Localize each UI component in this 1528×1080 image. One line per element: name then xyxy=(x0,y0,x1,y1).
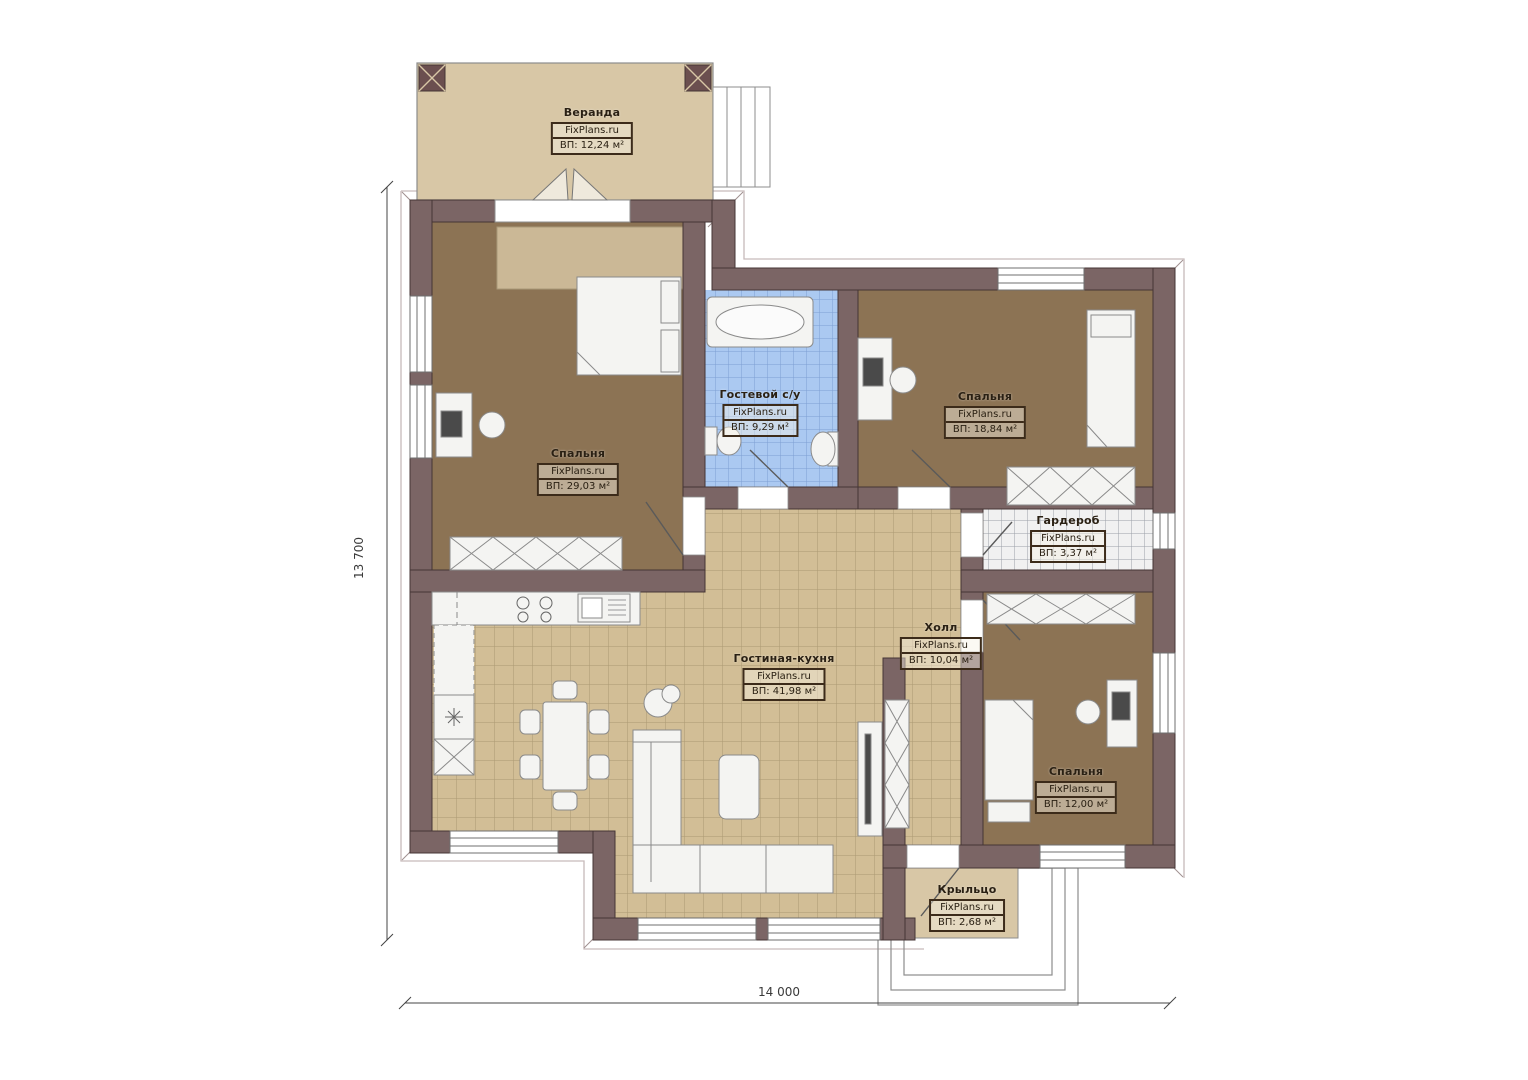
bathtub xyxy=(707,297,813,347)
room-label-living-kitchen: Гостиная-кухня FixPlans.ru ВП: 41,98 м² xyxy=(733,653,834,701)
room-name: Холл xyxy=(900,622,982,635)
washbasin xyxy=(811,432,838,466)
fridge xyxy=(434,695,474,739)
coffee-table xyxy=(719,755,759,819)
room-label-bedroom-left: Спальня FixPlans.ru ВП: 29,03 м² xyxy=(537,448,619,496)
watermark: FixPlans.ru xyxy=(1032,532,1104,548)
room-area: ВП: 18,84 м² xyxy=(946,423,1024,437)
entrance-door-opening xyxy=(907,845,959,868)
bed-single xyxy=(1087,310,1135,447)
chair xyxy=(1076,700,1100,724)
window xyxy=(638,918,756,940)
watermark: FixPlans.ru xyxy=(539,465,617,481)
desk-with-computer xyxy=(436,393,472,457)
closet xyxy=(1007,467,1135,505)
window xyxy=(768,918,880,940)
dimension-height-label: 13 700 xyxy=(352,537,366,579)
chair xyxy=(479,412,505,438)
window xyxy=(1040,845,1125,868)
room-area: ВП: 12,00 м² xyxy=(1037,798,1115,812)
desk-with-computer xyxy=(858,338,892,420)
closet xyxy=(885,700,909,828)
watermark: FixPlans.ru xyxy=(902,639,980,655)
window xyxy=(998,268,1084,290)
watermark: FixPlans.ru xyxy=(745,670,823,686)
watermark: FixPlans.ru xyxy=(1037,783,1115,799)
room-label-bedroom-bottom-right: Спальня FixPlans.ru ВП: 12,00 м² xyxy=(1035,766,1117,814)
room-area: ВП: 29,03 м² xyxy=(539,480,617,494)
room-name: Спальня xyxy=(1035,766,1117,779)
window xyxy=(410,385,432,458)
room-area: ВП: 3,37 м² xyxy=(1032,547,1104,561)
bed-single xyxy=(985,700,1033,822)
window xyxy=(410,296,432,372)
room-label-hall: Холл FixPlans.ru ВП: 10,04 м² xyxy=(900,622,982,670)
cabinet xyxy=(434,739,474,775)
closet xyxy=(450,537,622,570)
dimension-width-label: 14 000 xyxy=(758,985,800,999)
room-name: Крыльцо xyxy=(929,884,1005,897)
room-name: Гардероб xyxy=(1030,515,1106,528)
room-area: ВП: 10,04 м² xyxy=(902,654,980,668)
room-label-bedroom-top-right: Спальня FixPlans.ru ВП: 18,84 м² xyxy=(944,391,1026,439)
watermark: FixPlans.ru xyxy=(946,408,1024,424)
watermark: FixPlans.ru xyxy=(931,901,1003,917)
watermark: FixPlans.ru xyxy=(553,124,631,140)
closet xyxy=(987,594,1135,624)
room-area: ВП: 12,24 м² xyxy=(553,139,631,153)
room-area: ВП: 41,98 м² xyxy=(745,685,823,699)
bed-double xyxy=(577,277,681,375)
window xyxy=(1153,653,1175,733)
veranda-door-opening xyxy=(495,200,630,222)
room-name: Гостиная-кухня xyxy=(733,653,834,666)
tv-stand xyxy=(858,722,882,836)
room-label-veranda: Веранда FixPlans.ru ВП: 12,24 м² xyxy=(551,107,633,155)
kitchen-sink xyxy=(578,594,630,622)
room-label-porch: Крыльцо FixPlans.ru ВП: 2,68 м² xyxy=(929,884,1005,932)
room-area: ВП: 2,68 м² xyxy=(931,916,1003,930)
chair xyxy=(890,367,916,393)
watermark: FixPlans.ru xyxy=(724,406,796,422)
room-name: Спальня xyxy=(537,448,619,461)
window xyxy=(450,831,558,853)
room-name: Гостевой с/у xyxy=(719,389,800,402)
floor-plan-drawing xyxy=(0,0,1528,1080)
room-name: Веранда xyxy=(551,107,633,120)
room-label-guest-bathroom: Гостевой с/у FixPlans.ru ВП: 9,29 м² xyxy=(719,389,800,437)
window xyxy=(1153,513,1175,549)
room-area: ВП: 9,29 м² xyxy=(724,421,796,435)
desk-with-computer xyxy=(1107,680,1137,747)
room-label-wardrobe: Гардероб FixPlans.ru ВП: 3,37 м² xyxy=(1030,515,1106,563)
room-name: Спальня xyxy=(944,391,1026,404)
